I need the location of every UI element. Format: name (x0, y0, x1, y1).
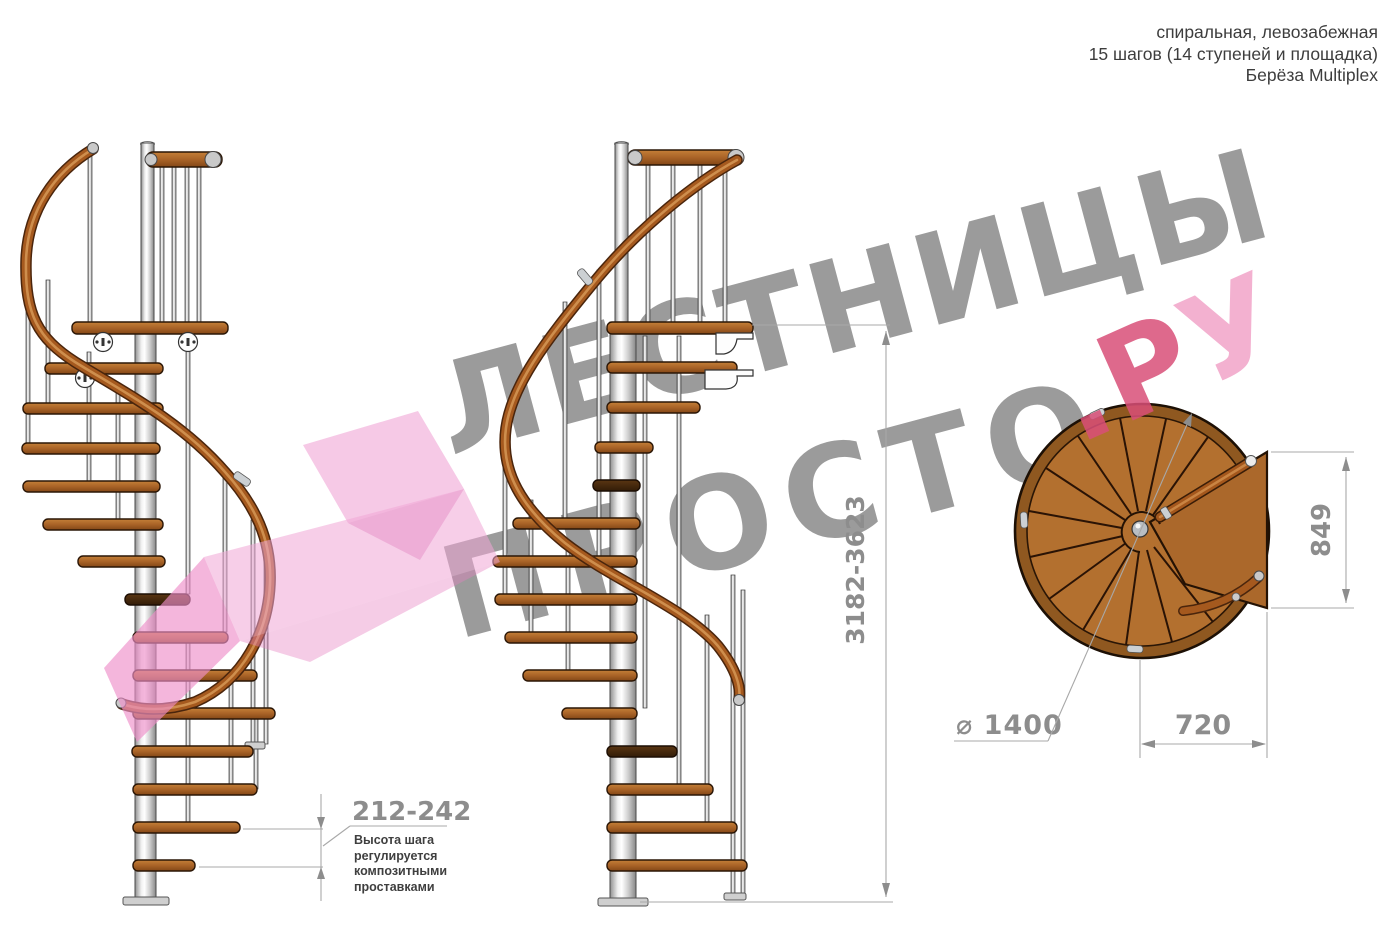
platform-tread (72, 322, 228, 334)
step-height-note: Высота шага регулируется композитными пр… (354, 833, 447, 895)
spec-header: спиральная, левозабежная 15 шагов (14 ст… (1089, 22, 1378, 87)
top-railing (88, 152, 222, 323)
center-pole-upper (615, 143, 628, 325)
arrow-down-icon (317, 817, 325, 829)
note-line-3: композитными (354, 864, 447, 880)
diameter-label: ⌀ 1400 (956, 710, 1063, 741)
step-height-label: 212-242 (352, 797, 471, 827)
spec-line-type: спиральная, левозабежная (1089, 22, 1378, 44)
plan-center-hub (1132, 521, 1148, 537)
arrow-down-icon (882, 883, 890, 897)
pole-base-flange (123, 897, 169, 905)
platform-width-label: 720 (1175, 710, 1231, 741)
note-line-2: регулируется (354, 849, 447, 865)
technical-drawing: 3182-3623 212-242 849 720 (0, 0, 1400, 939)
arrow-up-icon (317, 867, 325, 879)
spec-line-material: Берёза Multiplex (1089, 65, 1378, 87)
platform-side-label: 849 (1307, 503, 1337, 557)
note-line-1: Высота шага (354, 833, 447, 849)
arrow-right-icon (1252, 740, 1266, 748)
left-side-view (22, 142, 275, 906)
tread-brackets (705, 333, 753, 389)
center-pole-upper (141, 143, 154, 325)
top-railing (628, 150, 744, 323)
total-height-label: 3182-3623 (841, 495, 870, 645)
arrow-left-icon (1141, 740, 1155, 748)
middle-side-view (493, 142, 753, 907)
arrow-up-icon (1342, 457, 1350, 471)
dimension-platform-side: 849 (1271, 452, 1354, 608)
staircase-drawing-page: ЛЕСТНИЦЫ ПРОСТО (0, 0, 1400, 939)
arrow-down-icon (1342, 589, 1350, 603)
arrow-up-icon (882, 331, 890, 345)
platform-tread (607, 322, 753, 334)
treads (493, 322, 753, 871)
note-line-4: проставками (354, 880, 447, 896)
spec-line-steps: 15 шагов (14 ступеней и площадка) (1089, 44, 1378, 66)
